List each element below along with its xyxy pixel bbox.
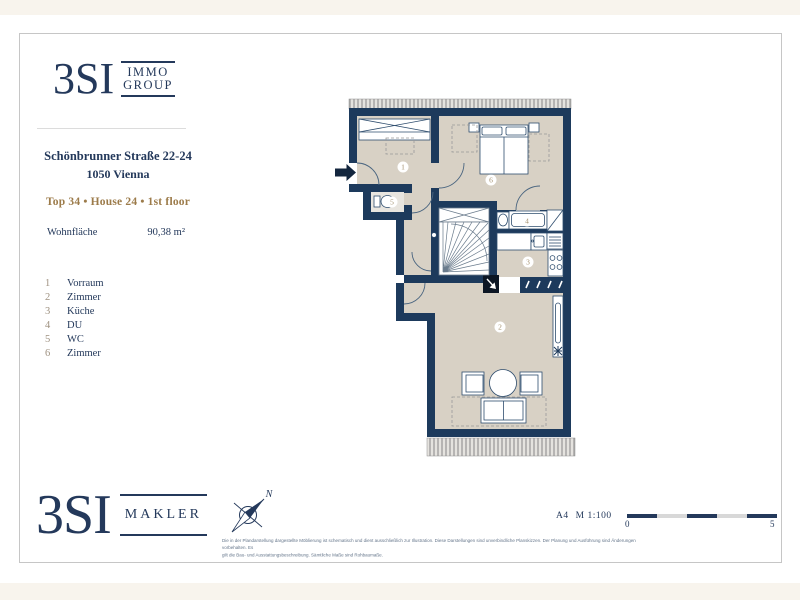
scale-start-label: 0 <box>625 519 630 529</box>
room-label-1: 1 <box>401 163 405 172</box>
legend-label: Zimmer <box>67 348 101 359</box>
legend-num: 3 <box>45 306 67 317</box>
room-label-6: 6 <box>489 176 493 185</box>
armchair-right <box>520 372 542 395</box>
round-table <box>490 370 517 397</box>
legend-num: 5 <box>45 334 67 345</box>
sheet-format: A4 <box>556 511 569 521</box>
unit-info: Top 34 • House 24 • 1st floor <box>20 196 216 208</box>
legend-num: 4 <box>45 320 67 331</box>
brand-tagline-bottom: MAKLER <box>120 494 207 536</box>
legend-label: WC <box>67 334 84 345</box>
roof-hatch-bottom <box>427 438 575 456</box>
scale-bar-segment <box>747 514 777 518</box>
scale-note: A4 M 1:100 <box>556 511 612 521</box>
floor-plan: 1 2 3 4 5 6 <box>333 96 581 458</box>
roof-hatch-top <box>349 99 571 109</box>
legend-row: 1Vorraum <box>45 276 104 290</box>
legend-num: 6 <box>45 348 67 359</box>
disclaimer-line2: gilt die Bau- und Ausstattungsbeschreibu… <box>222 551 642 558</box>
top-margin-band <box>0 0 800 15</box>
legend-label: Küche <box>67 306 94 317</box>
legend-label: Vorraum <box>67 278 104 289</box>
legend-row: 5WC <box>45 332 104 346</box>
brand-name-bottom: 3SI <box>36 487 111 543</box>
legend-num: 2 <box>45 292 67 303</box>
scale-bar-segment <box>657 514 687 518</box>
sofa <box>481 398 526 423</box>
room-label-4: 4 <box>525 217 529 226</box>
living-area-value: 90,38 m² <box>147 227 185 238</box>
scale-bar-segment <box>717 514 747 518</box>
storage-box <box>439 208 489 222</box>
legend-label: DU <box>67 320 82 331</box>
legend-num: 1 <box>45 278 67 289</box>
legend-row: 2Zimmer <box>45 290 104 304</box>
bottom-margin-band <box>0 583 800 600</box>
brand-name: 3SI <box>53 57 114 101</box>
brand-logo-bottom: 3SI MAKLER <box>36 487 207 543</box>
compass-north-label: N <box>265 489 274 500</box>
scale-bar-segment <box>627 514 657 518</box>
scale-bar <box>627 514 777 518</box>
brand-tagline-line2: GROUP <box>123 79 173 92</box>
disclaimer-text: Die in der Plandarstellung dargestellte … <box>222 537 642 559</box>
room-label-5: 5 <box>390 198 394 207</box>
plant-icon <box>554 346 562 356</box>
staircase <box>432 222 489 275</box>
header-divider <box>37 128 186 129</box>
room-label-2: 2 <box>498 323 502 332</box>
scale-end-label: 5 <box>770 519 775 529</box>
room-legend: 1Vorraum 2Zimmer 3Küche 4DU 5WC 6Zimmer <box>45 276 104 360</box>
brand-tagline: IMMO GROUP <box>121 61 175 97</box>
room-label-3: 3 <box>526 258 530 267</box>
legend-row: 6Zimmer <box>45 346 104 360</box>
brand-logo-top: 3SI IMMO GROUP <box>53 57 175 101</box>
address-line1: Schönbrunner Straße 22-24 <box>20 149 216 164</box>
living-area-row: Wohnfläche 90,38 m² <box>47 227 185 238</box>
compass-icon: N <box>224 486 280 536</box>
disclaimer-line1: Die in der Plandarstellung dargestellte … <box>222 537 642 551</box>
property-info: Schönbrunner Straße 22-24 1050 Vienna To… <box>20 149 216 208</box>
armchair-left <box>462 372 484 395</box>
legend-row: 3Küche <box>45 304 104 318</box>
scale-bar-segment <box>687 514 717 518</box>
living-area-label: Wohnfläche <box>47 227 97 238</box>
scale-ratio: M 1:100 <box>576 511 612 521</box>
address-line2: 1050 Vienna <box>20 167 216 182</box>
legend-label: Zimmer <box>67 292 101 303</box>
wardrobe-vorraum <box>359 119 430 140</box>
stair-direction-box <box>483 275 499 293</box>
legend-row: 4DU <box>45 318 104 332</box>
